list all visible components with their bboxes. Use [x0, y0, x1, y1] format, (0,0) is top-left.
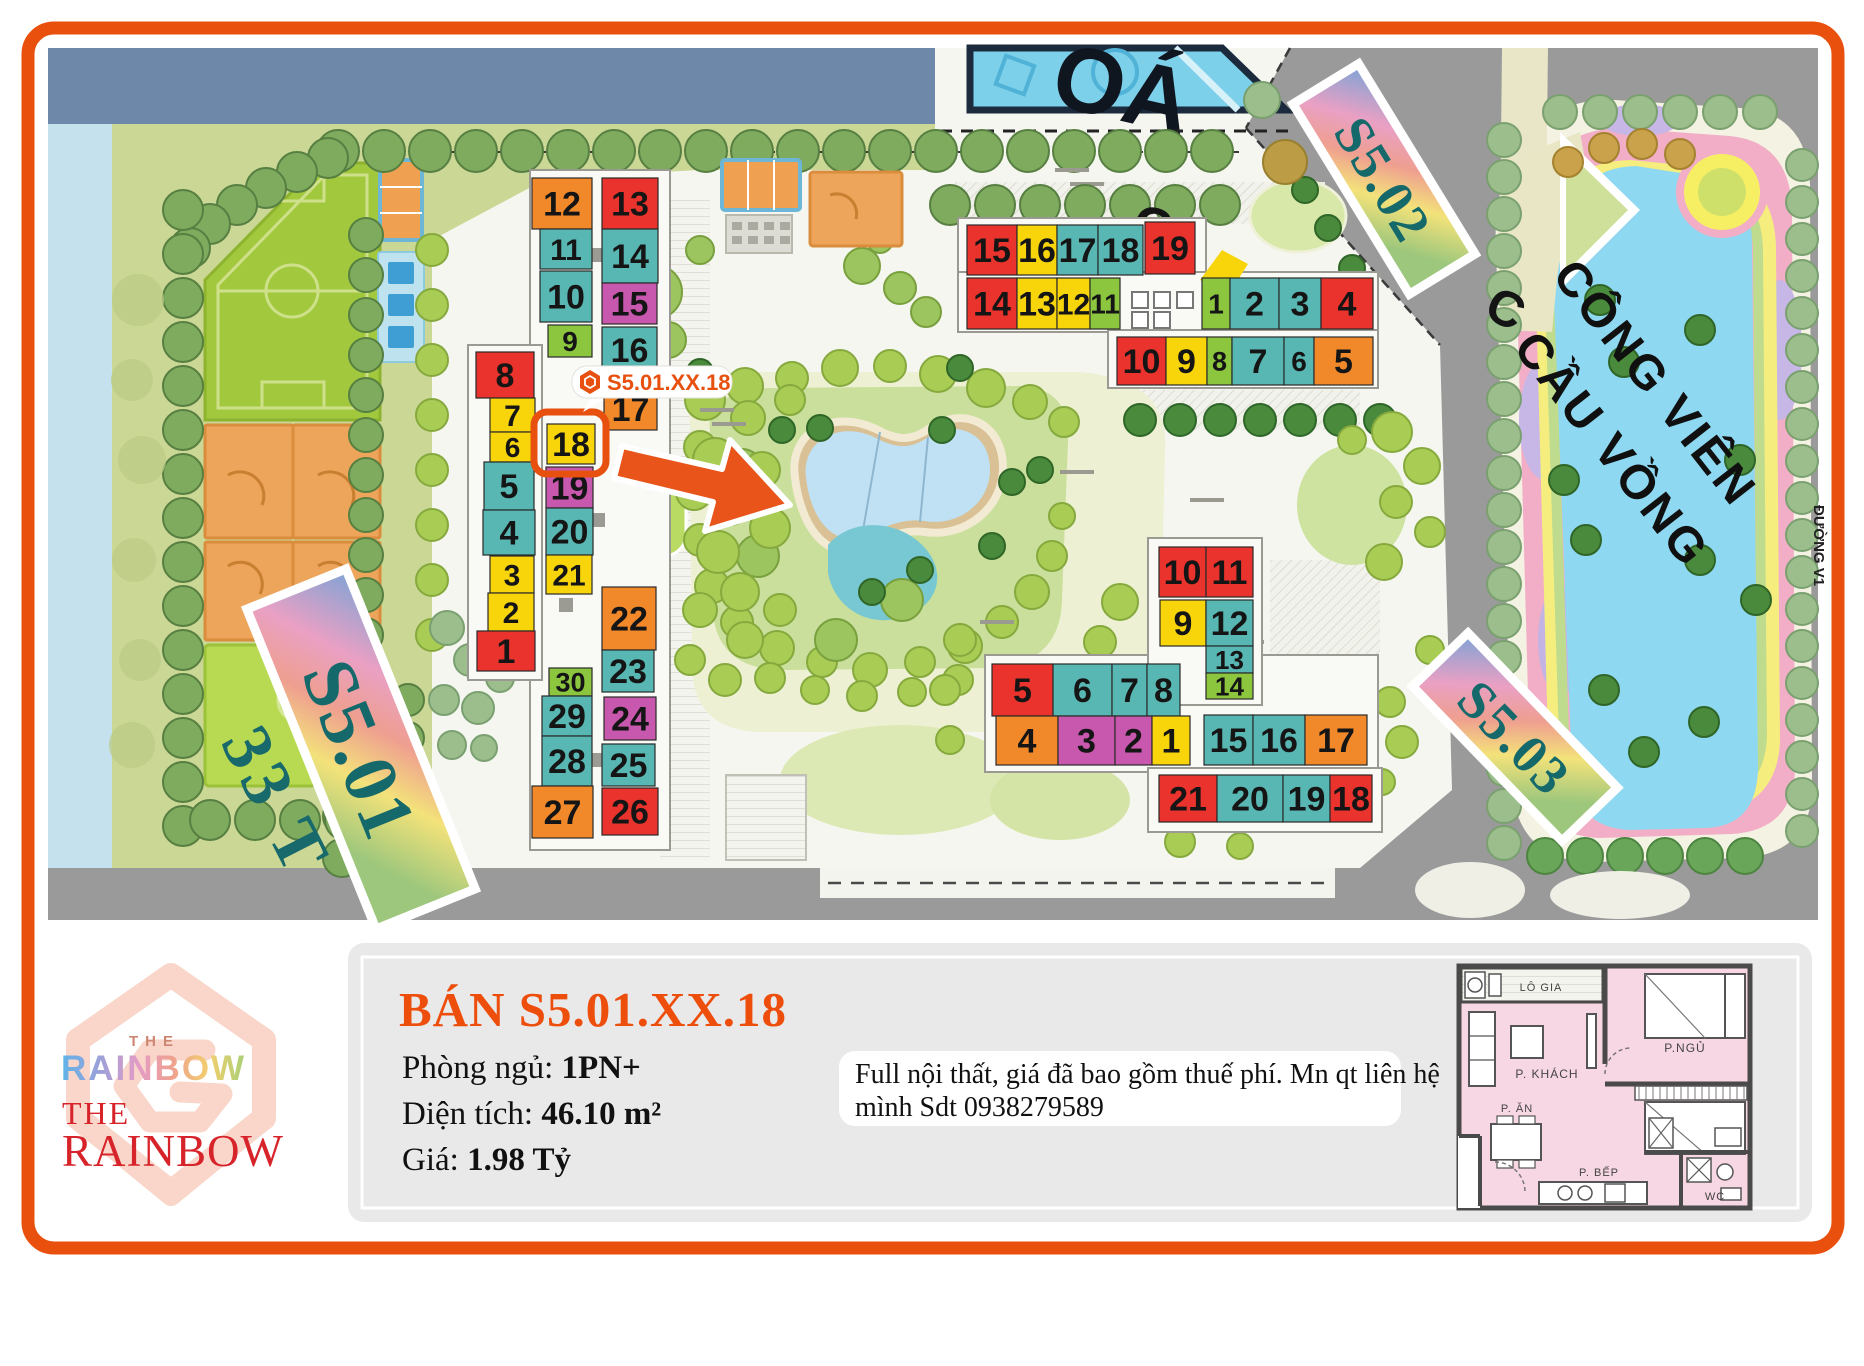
svg-text:8: 8	[496, 357, 515, 395]
svg-text:20: 20	[551, 514, 589, 552]
svg-text:P. KHÁCH: P. KHÁCH	[1515, 1066, 1578, 1081]
svg-text:30: 30	[555, 668, 585, 698]
svg-text:24: 24	[611, 701, 649, 739]
svg-text:5: 5	[1334, 343, 1353, 381]
svg-text:9: 9	[1177, 343, 1196, 381]
svg-text:19: 19	[1288, 781, 1326, 819]
svg-text:21: 21	[1169, 781, 1207, 819]
svg-text:RAINBOW: RAINBOW	[61, 1049, 246, 1088]
svg-text:11: 11	[550, 234, 582, 267]
svg-text:16: 16	[1018, 232, 1056, 270]
svg-text:THE: THE	[129, 1033, 180, 1050]
svg-text:2: 2	[503, 597, 520, 630]
svg-text:6: 6	[1073, 672, 1092, 710]
svg-text:2: 2	[1124, 723, 1143, 761]
svg-text:3: 3	[1077, 723, 1096, 761]
svg-text:P. ĂN: P. ĂN	[1501, 1102, 1533, 1115]
svg-text:2: 2	[1245, 286, 1264, 324]
svg-text:12: 12	[543, 186, 581, 224]
svg-text:11: 11	[1212, 554, 1248, 592]
svg-text:S5.01.XX.18: S5.01.XX.18	[607, 370, 731, 395]
svg-text:5: 5	[1013, 672, 1032, 710]
svg-text:22: 22	[610, 601, 648, 639]
svg-text:WC: WC	[1705, 1191, 1725, 1203]
svg-text:11: 11	[1090, 289, 1120, 320]
svg-text:13: 13	[1018, 286, 1056, 324]
svg-text:7: 7	[1249, 343, 1268, 381]
svg-text:4: 4	[500, 515, 519, 553]
svg-text:18: 18	[1332, 781, 1370, 819]
svg-text:9: 9	[562, 326, 578, 357]
svg-text:25: 25	[610, 747, 648, 785]
svg-text:6: 6	[505, 432, 521, 463]
svg-text:20: 20	[1231, 781, 1269, 819]
svg-text:10: 10	[1164, 554, 1202, 592]
svg-text:1: 1	[1208, 289, 1224, 320]
svg-text:18: 18	[552, 426, 590, 464]
svg-text:7: 7	[1120, 672, 1139, 710]
svg-text:8: 8	[1212, 347, 1227, 377]
svg-text:17: 17	[1317, 722, 1355, 760]
svg-text:4: 4	[1018, 723, 1037, 761]
svg-text:4: 4	[1338, 286, 1357, 324]
svg-text:7: 7	[504, 400, 521, 433]
svg-text:29: 29	[548, 698, 586, 736]
svg-text:10: 10	[1123, 343, 1161, 381]
svg-text:3: 3	[1291, 286, 1310, 324]
svg-text:P. BẾP: P. BẾP	[1579, 1166, 1619, 1179]
svg-text:13: 13	[611, 186, 649, 224]
svg-text:LÔ GIA: LÔ GIA	[1520, 981, 1563, 994]
svg-text:RAINBOW: RAINBOW	[62, 1126, 284, 1176]
svg-text:18: 18	[1102, 232, 1140, 270]
svg-text:14: 14	[973, 286, 1011, 324]
svg-text:15: 15	[1210, 722, 1248, 760]
svg-text:23: 23	[609, 653, 647, 691]
svg-text:14: 14	[1215, 671, 1244, 701]
svg-text:BÁN S5.01.XX.18: BÁN S5.01.XX.18	[399, 982, 787, 1037]
svg-text:Diện tích: 46.10 m²: Diện tích: 46.10 m²	[402, 1096, 661, 1132]
svg-text:12: 12	[1057, 288, 1090, 321]
svg-text:17: 17	[1059, 232, 1097, 270]
svg-text:26: 26	[611, 794, 649, 832]
svg-text:21: 21	[552, 559, 585, 592]
svg-text:16: 16	[1260, 722, 1298, 760]
svg-text:mình Sdt 0938279589: mình Sdt 0938279589	[855, 1092, 1104, 1123]
svg-text:10: 10	[547, 279, 585, 317]
svg-text:P.NGỦ: P.NGỦ	[1664, 1040, 1705, 1055]
svg-text:16: 16	[611, 332, 649, 370]
svg-text:19: 19	[1151, 230, 1189, 268]
svg-text:15: 15	[611, 286, 649, 324]
svg-text:ĐƯỜNG V1: ĐƯỜNG V1	[1810, 505, 1828, 586]
svg-text:Giá: 1.98 Tỷ: Giá: 1.98 Tỷ	[402, 1142, 571, 1178]
svg-text:13: 13	[1215, 645, 1244, 675]
svg-text:6: 6	[1291, 346, 1307, 377]
svg-text:15: 15	[973, 232, 1011, 270]
svg-text:1: 1	[497, 633, 516, 671]
svg-text:Phòng ngủ: 1PN+: Phòng ngủ: 1PN+	[402, 1050, 641, 1086]
svg-text:Full nội thất, giá đã bao gồm: Full nội thất, giá đã bao gồm thuế phí. …	[855, 1059, 1440, 1090]
svg-text:1: 1	[1162, 723, 1181, 761]
svg-text:8: 8	[1154, 672, 1173, 710]
svg-text:5: 5	[500, 468, 519, 506]
svg-text:27: 27	[544, 794, 582, 832]
svg-text:12: 12	[1211, 605, 1249, 643]
svg-text:14: 14	[611, 238, 649, 276]
svg-text:28: 28	[548, 743, 586, 781]
svg-text:3: 3	[504, 559, 521, 592]
svg-text:9: 9	[1174, 605, 1193, 643]
